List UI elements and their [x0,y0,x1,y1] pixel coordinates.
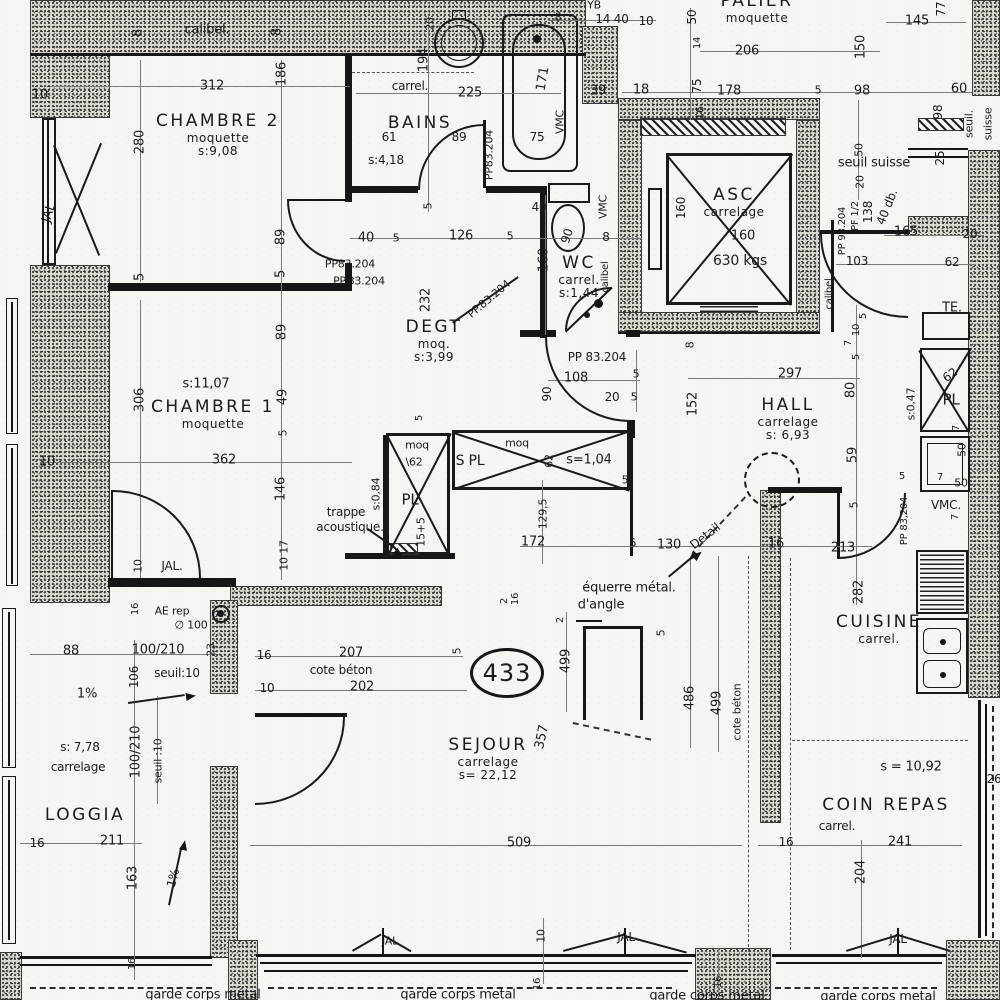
equerre-left [583,626,586,720]
dimension-label: 8 [555,12,562,23]
dimension-label: PL [401,493,418,508]
dimension-label: 16 [131,603,141,615]
dimension-label: 90 [541,387,553,402]
dimension-label: 16 [714,976,724,988]
railing-loggia-1 [20,956,212,959]
dimension-label: 160 [731,230,755,243]
dimension-label: 50 [954,478,968,489]
dimension-label: 61 [382,131,397,143]
wall-top-right-corner [972,0,1000,96]
dimension-label: 20 [425,17,436,31]
dimension-label: seuil:10 [154,667,200,679]
dimension-label: 1% [77,688,97,701]
dimension-label: 5 [899,472,905,482]
dimension-label: 108 [564,372,588,385]
room-sub2: s: 6,93 [758,429,819,443]
dimension-label: 75 [530,131,545,143]
dimension-label: trappe [327,506,365,518]
dimension-label: PL [942,393,959,408]
dimension-label: 20 [605,391,620,403]
dimension-label: PP 93.204 [838,207,848,255]
dimension-label: 126 [449,230,473,243]
dimension-label: acoustique. [316,521,383,533]
dimension-label: 100/210 [132,644,185,657]
dimension-label: 225 [458,87,482,100]
dimension-label: 40 db. [875,188,900,227]
dimension-label: moq [405,440,429,451]
dimension-label: ∅ 100 [174,620,207,631]
dimension-label: 40 [532,201,547,213]
dimension-label: 40 [358,232,374,245]
room-sub2: s= 22,12 [448,769,527,783]
line-shaft-bottom [618,332,820,334]
dimension-label: 16 [533,978,543,990]
sill-coinrepas-1 [772,954,946,957]
dimension-label: 306 [134,388,147,412]
plan-number-badge: 433 [470,648,544,698]
sill-sejour-2 [260,962,692,964]
dimension-label: 7 [951,514,961,520]
dimension-label: 5 [849,502,860,509]
room-label: SEJOURcarrelages= 22,12 [448,736,527,783]
jal-blind-2 [55,143,102,254]
dimension-label: 280 [134,130,147,154]
railing-loggia-2 [20,964,212,966]
wall-shaft-top [618,98,820,120]
room-sub1: moquette [156,132,280,146]
dimension-label: 8 [271,28,284,36]
dimension-label: 5 [134,273,147,281]
dimension-label: 60 [951,83,967,96]
dimension-label: 62 [544,454,555,468]
dimension-label: 14 40 [595,13,628,25]
sill-coinrepas-2 [776,962,942,964]
dimension-label: 213 [831,542,855,555]
room-sub1: moquette [721,12,794,26]
jal-tri-2a [563,933,625,951]
dimension-label: 10 [133,559,144,573]
slope-arrowhead [185,692,196,701]
dimension-label: 10 [639,15,654,27]
room-sub2: s:3,99 [406,351,463,365]
axis-kitchen-v [790,558,791,950]
dimension-label: JAL [889,933,907,945]
dimension-label: 165 [894,226,918,239]
dimension-label: 146 [275,477,288,501]
dimension-label: cote béton [310,664,373,676]
sill-right-1 [978,700,981,938]
dimension-label: s:4,18 [368,154,404,166]
dimension-label: 630 kgs [713,254,767,268]
dimension-label: 160 [675,197,687,219]
dimension-label: PP 83,204 [900,497,910,545]
dimension-label: 138 [862,201,874,223]
dimension-label: 202 [350,681,374,694]
dimension-label: 5 [859,313,869,319]
wall-corridor-top [230,586,442,606]
dimension-label: 312 [200,80,224,93]
dimension-label: 241 [888,836,912,849]
dimension-label: 10 [260,682,275,694]
dimension-label: 5 [622,475,629,486]
dimension-label: 16 [695,106,706,120]
dimension-label: 16 [257,649,272,661]
dimension-label: PP 83.204 [568,351,626,363]
dimension-label: 171 [534,66,551,92]
room-name: CHAMBRE 1 [151,398,275,418]
dimension-label: 10 [279,557,290,571]
dimension-label: 7 [844,340,854,346]
wall-bains-south-e [486,186,544,193]
room-label: CUISINEcarrel. [836,613,922,646]
asc-door-stripes [700,303,758,312]
dimension-label: carrelage [51,761,106,773]
dimension-label: 25 [934,151,946,166]
dimension-label: garde corps métal [145,989,260,1000]
dimension-label: 16 [128,958,138,970]
dimension-label: 5 [278,430,289,437]
dimension-label: 17 [279,540,290,554]
dimension-label: 77 [935,2,947,17]
dimension-label: PP83.204 [484,130,495,180]
dimension-label: 172 [521,536,545,549]
room-sub2: s:1,44 [558,287,599,301]
room-label: WCcarrel.s:1,44 [558,254,599,301]
sink-dot-1 [940,639,946,645]
room-label: ASCcarrelage [704,186,765,219]
room-sub1: carrelage [448,756,527,770]
room-name: ASC [704,186,765,206]
dimension-label: 16 [30,837,45,849]
dim-line-h [250,845,742,846]
dimension-label: 194 [418,48,431,72]
dimension-label: carrel. [819,820,855,832]
dimension-label: 499 [560,649,573,673]
wc-tank [548,183,590,203]
dimension-label: PP83.204 [325,259,375,270]
dimension-label: 207 [339,647,363,660]
slope-arrowhead-2 [179,839,189,850]
dimension-label: 297 [778,368,802,381]
equerre-foot-dash [573,722,652,741]
floor-plan-canvas: 433 CHAMBRE 2moquettes:9,08BAINSWCcarrel… [0,0,1000,1000]
room-label: CHAMBRE 2moquettes:9,08 [156,112,280,159]
washbasin-inner [441,25,477,61]
dimension-label: PF 1/2 [851,201,861,231]
dimension-label: 7 [937,473,943,483]
dimension-label: 362 [212,454,236,467]
dimension-label: 59 [847,447,860,463]
equerre-right [640,626,643,720]
dimension-label: 5 [423,203,434,210]
dimension-label: s:11,07 [183,378,230,391]
wall-wc-south-w [520,330,556,337]
dimension-label: 5 [815,85,822,96]
room-label: LOGGIA [45,806,125,826]
dimension-label: 206 [735,45,759,58]
sill-sejour-1 [256,954,696,957]
dimension-label: PP.83.204 [333,276,385,287]
room-name: HALL [758,396,819,416]
plan-number: 433 [483,659,532,687]
dimension-label: 5 [631,392,638,403]
dimension-label: 49 [277,389,290,405]
room-label: HALLcarrelages: 6,93 [758,396,819,443]
room-sub1: moquette [151,418,275,432]
room-label: DEGTmoq.s:3,99 [406,318,463,365]
dimension-label: garde corps metal [820,991,935,1000]
dimension-label: s:0,84 [371,478,382,511]
dimension-label: 186 [276,62,289,86]
dimension-label: carrel. [392,80,428,92]
dimension-label: JAL [617,931,635,943]
dimension-label: garde corps metal [400,989,515,1000]
wall-shaft-left [618,120,642,334]
asc-counterweight [648,188,662,270]
dimension-label: 204 [855,860,868,884]
room-label: COIN REPAS [822,796,950,816]
room-label: CHAMBRE 1moquette [151,398,275,431]
dimension-label: s=1,04 [566,454,611,467]
dimension-label: garde corps metal [649,990,764,1000]
dimension-label: 50 [854,143,865,157]
dimension-label: 160 [538,248,551,272]
dimension-label: VMC [598,195,609,219]
dimension-label: s:0,47 [906,388,917,421]
wall-chambre2-right [345,55,352,202]
wall-shaft-bottom [618,312,820,332]
dim-line-v [140,60,141,282]
dimension-label: calibel [825,278,835,309]
lintel-hatch-right [918,118,964,131]
dimension-label: 5 [452,648,463,655]
room-name: DEGT [406,318,463,338]
dimension-label: JAL. [161,560,182,572]
dimension-label: 5 [415,415,425,421]
wall-loggia-divider-b [210,766,238,958]
equerre-tick [576,620,602,622]
dimension-label: cote béton [732,683,743,740]
dim-line-h [622,92,972,93]
dimension-label: 8 [132,29,145,37]
sill-sejour-3 [264,970,688,972]
dim-line-v [718,556,719,752]
room-name: WC [558,254,599,274]
dimension-label: 499 [711,691,724,715]
door-arc-chambre2 [287,200,345,262]
dimension-label: 152 [687,392,700,416]
pier-bottom-right [946,940,1000,1000]
dimension-label: PP.83.204 [466,278,513,320]
dimension-label: 282 [853,580,866,604]
lintel-hatch-asc [640,118,786,136]
dimension-label: 10 [39,456,55,469]
dimension-label: 20 [963,228,978,240]
room-name: CHAMBRE 2 [156,112,280,132]
room-name: COIN REPAS [822,796,950,816]
dimension-label: 232 [420,288,433,312]
dimension-label: 16 [768,538,784,551]
dimension-label: S PL [456,454,485,468]
dimension-label: 163 [127,866,140,890]
axis-cuisine [792,740,968,741]
dim-line-h [40,462,352,463]
dimension-label: 5 [852,354,862,360]
dimension-label: 89 [275,229,288,245]
dimension-label: 62 [945,256,960,268]
window-chambre1-b [6,444,18,586]
dimension-label: 5 [393,233,400,244]
dimension-label: 39 [590,85,606,98]
dimension-label: VMC [555,110,566,134]
wall-shaft-right [796,120,820,334]
dimension-label: 103 [846,255,868,267]
window-loggia-a [2,608,16,768]
dimension-label: 26 [987,773,1000,785]
washbasin-tap [452,10,466,19]
dimension-label: 20 [855,175,866,189]
dimension-label: 23 [206,643,217,657]
dimension-label: 106 [128,666,140,688]
wall-left-lower [30,265,110,603]
dimension-label: 2 [500,598,510,604]
dimension-label: 129,5 [538,499,549,530]
dim-line-v [861,840,862,958]
dimension-label: 2 [556,617,566,623]
te-box [922,312,970,340]
dimension-label: 357 [533,724,551,750]
sink-dot-2 [940,672,946,678]
dimension-label: 5 [656,630,667,637]
dimension-label: s = 10,92 [880,761,941,774]
dimension-label: 8 [602,231,609,243]
dim-line-v [690,8,691,120]
wall-chambre1-south [108,578,236,587]
tub-drain [533,35,541,43]
dimension-label: 5 [275,270,288,278]
room-name: PALIER [721,0,794,12]
dimension-label: 98 [932,105,944,120]
dimension-label: 486 [684,686,697,710]
dimension-label: équerre métal. [582,582,675,595]
dimension-label: 88 [63,645,79,658]
room-name: CUISINE [836,613,922,633]
dimension-label: 15+5 [416,517,427,546]
dimension-label: 5 [630,538,637,549]
axis-beton-v [748,556,749,952]
dimension-label: 509 [507,837,531,850]
dim-line-h [688,378,860,379]
dimension-label: 1% [165,867,181,888]
sill-right-2 [985,704,987,936]
drainer-stripes [920,554,964,610]
dim-line-h [30,654,216,655]
dimension-label: 5 [507,231,514,242]
dimension-label: d'angle [578,599,625,612]
dimension-label: s: 7,78 [60,741,99,753]
room-name: SEJOUR [448,736,527,756]
equerre-top [583,626,643,629]
dimension-label: calibel [601,261,611,292]
room-name: BAINS [388,114,452,134]
room-sub1: moq. [406,338,463,352]
dimension-label: 16 [511,593,521,605]
dimension-label: 89 [452,131,467,143]
dimension-label: 150 [855,35,868,59]
dimension-label: 211 [100,835,124,848]
wall-bains-south-w [352,186,418,193]
dimension-label: seuil suisse [838,157,910,170]
dimension-label: \62 [405,457,422,468]
room-label: BAINS [388,114,452,134]
vent-dot [217,610,224,617]
dimension-label: 5 [633,369,640,380]
dimension-label: 178 [717,85,741,98]
dimension-label: 75 [691,79,703,94]
dim-line-v [134,640,135,980]
pier-loggia-corner [0,952,22,1000]
dim-line-v [690,556,691,748]
dimension-label: 98 [854,85,870,98]
dimension-label: JAL [382,936,398,947]
axis-carrelage [352,72,474,73]
room-name: LOGGIA [45,806,125,826]
dimension-label: 100/210 [130,726,143,779]
dimension-label: AE rep [155,606,190,617]
dimension-label: TE. [942,302,962,315]
dimension-label: 10 [852,324,862,336]
room-sub2: s:9,08 [156,145,280,159]
dimension-label: 16 [779,836,794,848]
room-sub1: carrel. [836,633,922,647]
dim-line-v [281,60,282,580]
window-arc-chambre1 [113,490,201,578]
garde-corps-dash-right [992,706,994,938]
room-sub1: carrelage [758,416,819,430]
dimension-label: YB [587,0,601,11]
dimension-label: suisse [983,108,994,141]
room-sub1: carrel. [558,274,599,288]
hall-detail-circle [744,452,800,508]
dimension-label: moq [505,438,529,449]
dimension-label: 10 [536,929,547,943]
wall-chambre-divider [108,283,352,291]
dimension-label: 50 [957,443,968,457]
dimension-label: seuil. [964,110,975,138]
jal-tri-1a [352,934,382,952]
dimension-label: 18 [633,84,649,97]
dimension-label: 80 [845,382,858,398]
dimension-label: calibel. [185,24,230,37]
dimension-label: 89 [276,324,289,340]
dimension-label: 14 [693,37,703,49]
dimension-label: 10 [32,89,48,102]
dimension-label: seuil :10 [153,739,164,784]
dimension-label: VMC. [931,499,961,511]
dimension-label: 8 [685,342,696,349]
window-chambre1-a [6,298,18,434]
dimension-label: 130 [657,539,681,552]
room-sub1: carrelage [704,206,765,220]
dimension-label: 50 [686,10,698,25]
room-label: PALIERmoquette [721,0,794,25]
dimension-label: 7 [952,425,962,431]
window-frame-chambre2 [42,118,56,265]
dimension-label: 145 [905,15,929,28]
window-loggia-b [2,776,16,944]
door-arc-sejour [255,717,345,805]
